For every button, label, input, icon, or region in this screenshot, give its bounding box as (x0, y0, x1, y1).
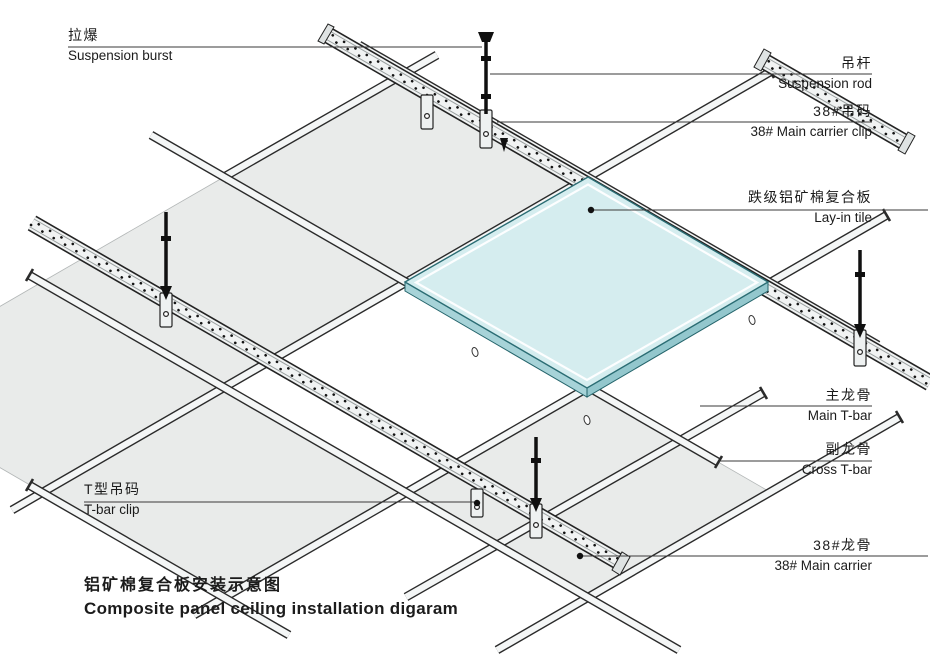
callout-en: 38# Main carrier clip (750, 124, 872, 140)
callout-en: Suspension rod (778, 76, 872, 92)
diagram-title-cn: 铝矿棉复合板安装示意图 (84, 571, 458, 595)
callout-cn: 吊杆 (778, 55, 872, 71)
callout-cn: 跌级铝矿棉复合板 (748, 189, 872, 205)
callout-suspension-rod: 吊杆 Suspension rod (778, 55, 872, 92)
callout-cross-t-bar: 副龙骨 Cross T-bar (802, 441, 872, 478)
callout-main-carrier-clip: 38#吊码 38# Main carrier clip (750, 103, 872, 140)
callout-en: Lay-in tile (748, 210, 872, 226)
callout-suspension-burst: 拉爆 Suspension burst (68, 27, 172, 64)
callout-cn: 主龙骨 (808, 387, 872, 403)
callout-cn: 副龙骨 (802, 441, 872, 457)
ceiling-installation-diagram: 拉爆 Suspension burst 吊杆 Suspension rod 38… (0, 0, 930, 657)
callout-lay-in-tile: 跌级铝矿棉复合板 Lay-in tile (748, 189, 872, 226)
callout-t-bar-clip: T型吊码 T-bar clip (84, 481, 141, 518)
t-bar-clip-top (421, 95, 433, 129)
callout-en: Cross T-bar (802, 462, 872, 478)
callout-en: Main T-bar (808, 408, 872, 424)
callout-main-carrier-38: 38#龙骨 38# Main carrier (774, 537, 872, 574)
diagram-title: 铝矿棉复合板安装示意图 Composite panel ceiling inst… (84, 571, 458, 619)
diagram-title-en: Composite panel ceiling installation dig… (84, 599, 458, 619)
suspension-burst-anchor (478, 32, 494, 42)
callout-main-t-bar: 主龙骨 Main T-bar (808, 387, 872, 424)
callout-en: 38# Main carrier (774, 558, 872, 574)
callout-cn: 拉爆 (68, 27, 172, 43)
callout-en: Suspension burst (68, 48, 172, 64)
callout-cn: T型吊码 (84, 481, 141, 497)
callout-cn: 38#龙骨 (774, 537, 872, 553)
suspension-rod-right (854, 250, 866, 338)
callout-en: T-bar clip (84, 502, 141, 518)
main-carrier-clip-38 (480, 110, 492, 148)
callout-cn: 38#吊码 (750, 103, 872, 119)
